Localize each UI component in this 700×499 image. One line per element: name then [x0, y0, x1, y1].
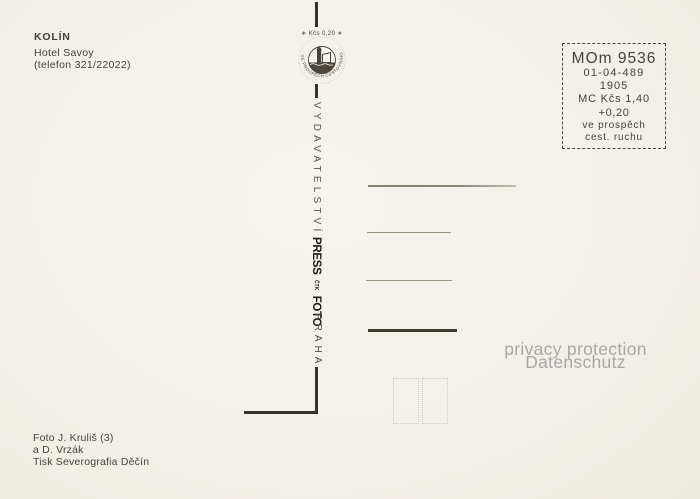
publisher-vertical-text: VYDAVATELSTVÍ	[311, 102, 322, 236]
rate-code: MOm 9536	[572, 50, 657, 67]
credits-block: Foto J. Kruliš (3) a D. Vrzák Tisk Sever…	[33, 433, 149, 468]
rate-number: 01-04-489	[584, 67, 645, 81]
emblem-tower	[317, 50, 321, 63]
postage-rate-box: MOm 9536 01-04-489 1905 MC Kčs 1,40 +0,2…	[562, 43, 666, 149]
pressfoto-logo-ctk: ČTK	[313, 280, 319, 290]
pressfoto-logo-press: PRESS	[310, 237, 322, 275]
address-line-3	[366, 280, 452, 281]
privacy-watermark-line2: Datenschutz	[468, 357, 683, 369]
caption-city: KOLÍN	[34, 31, 131, 44]
rate-note-line2: cest. ruchu	[585, 132, 643, 145]
postage-paid-emblem: ∗ Kčs 0,20 ∗ VE PROSPĚCH CESTOVNÍHO RUCH…	[291, 26, 353, 86]
rate-price-line2: +0,20	[599, 107, 630, 120]
dotted-placeholder-right	[422, 378, 448, 424]
rate-year: 1905	[600, 80, 628, 93]
caption-phone: (telefon 321/22022)	[34, 59, 131, 72]
rate-note-line1: ve prospěch	[582, 120, 645, 133]
divider-corner-segment	[244, 411, 318, 414]
emblem-price-label: ∗ Kčs 0,20 ∗	[301, 31, 343, 37]
divider-bottom-segment	[315, 367, 318, 413]
credit-print: Tisk Severografia Děčín	[33, 457, 149, 469]
privacy-watermark: privacy protection Datenschutz	[468, 344, 683, 368]
credit-photo2: a D. Vrzák	[33, 445, 149, 457]
postcard-back: KOLÍN Hotel Savoy (telefon 321/22022) ∗ …	[0, 0, 700, 499]
address-line-1	[368, 185, 516, 187]
address-line-4	[368, 329, 457, 332]
rate-price-line1: MC Kčs 1,40	[578, 93, 650, 107]
caption-venue: Hotel Savoy	[34, 47, 131, 60]
divider-top-segment	[315, 2, 318, 27]
caption-block: KOLÍN Hotel Savoy (telefon 321/22022)	[34, 31, 131, 72]
praha-vertical-text: PRAHA	[312, 313, 323, 367]
divider-under-emblem-segment	[315, 84, 318, 98]
address-line-2	[367, 232, 451, 233]
dotted-placeholder-left	[393, 378, 419, 424]
